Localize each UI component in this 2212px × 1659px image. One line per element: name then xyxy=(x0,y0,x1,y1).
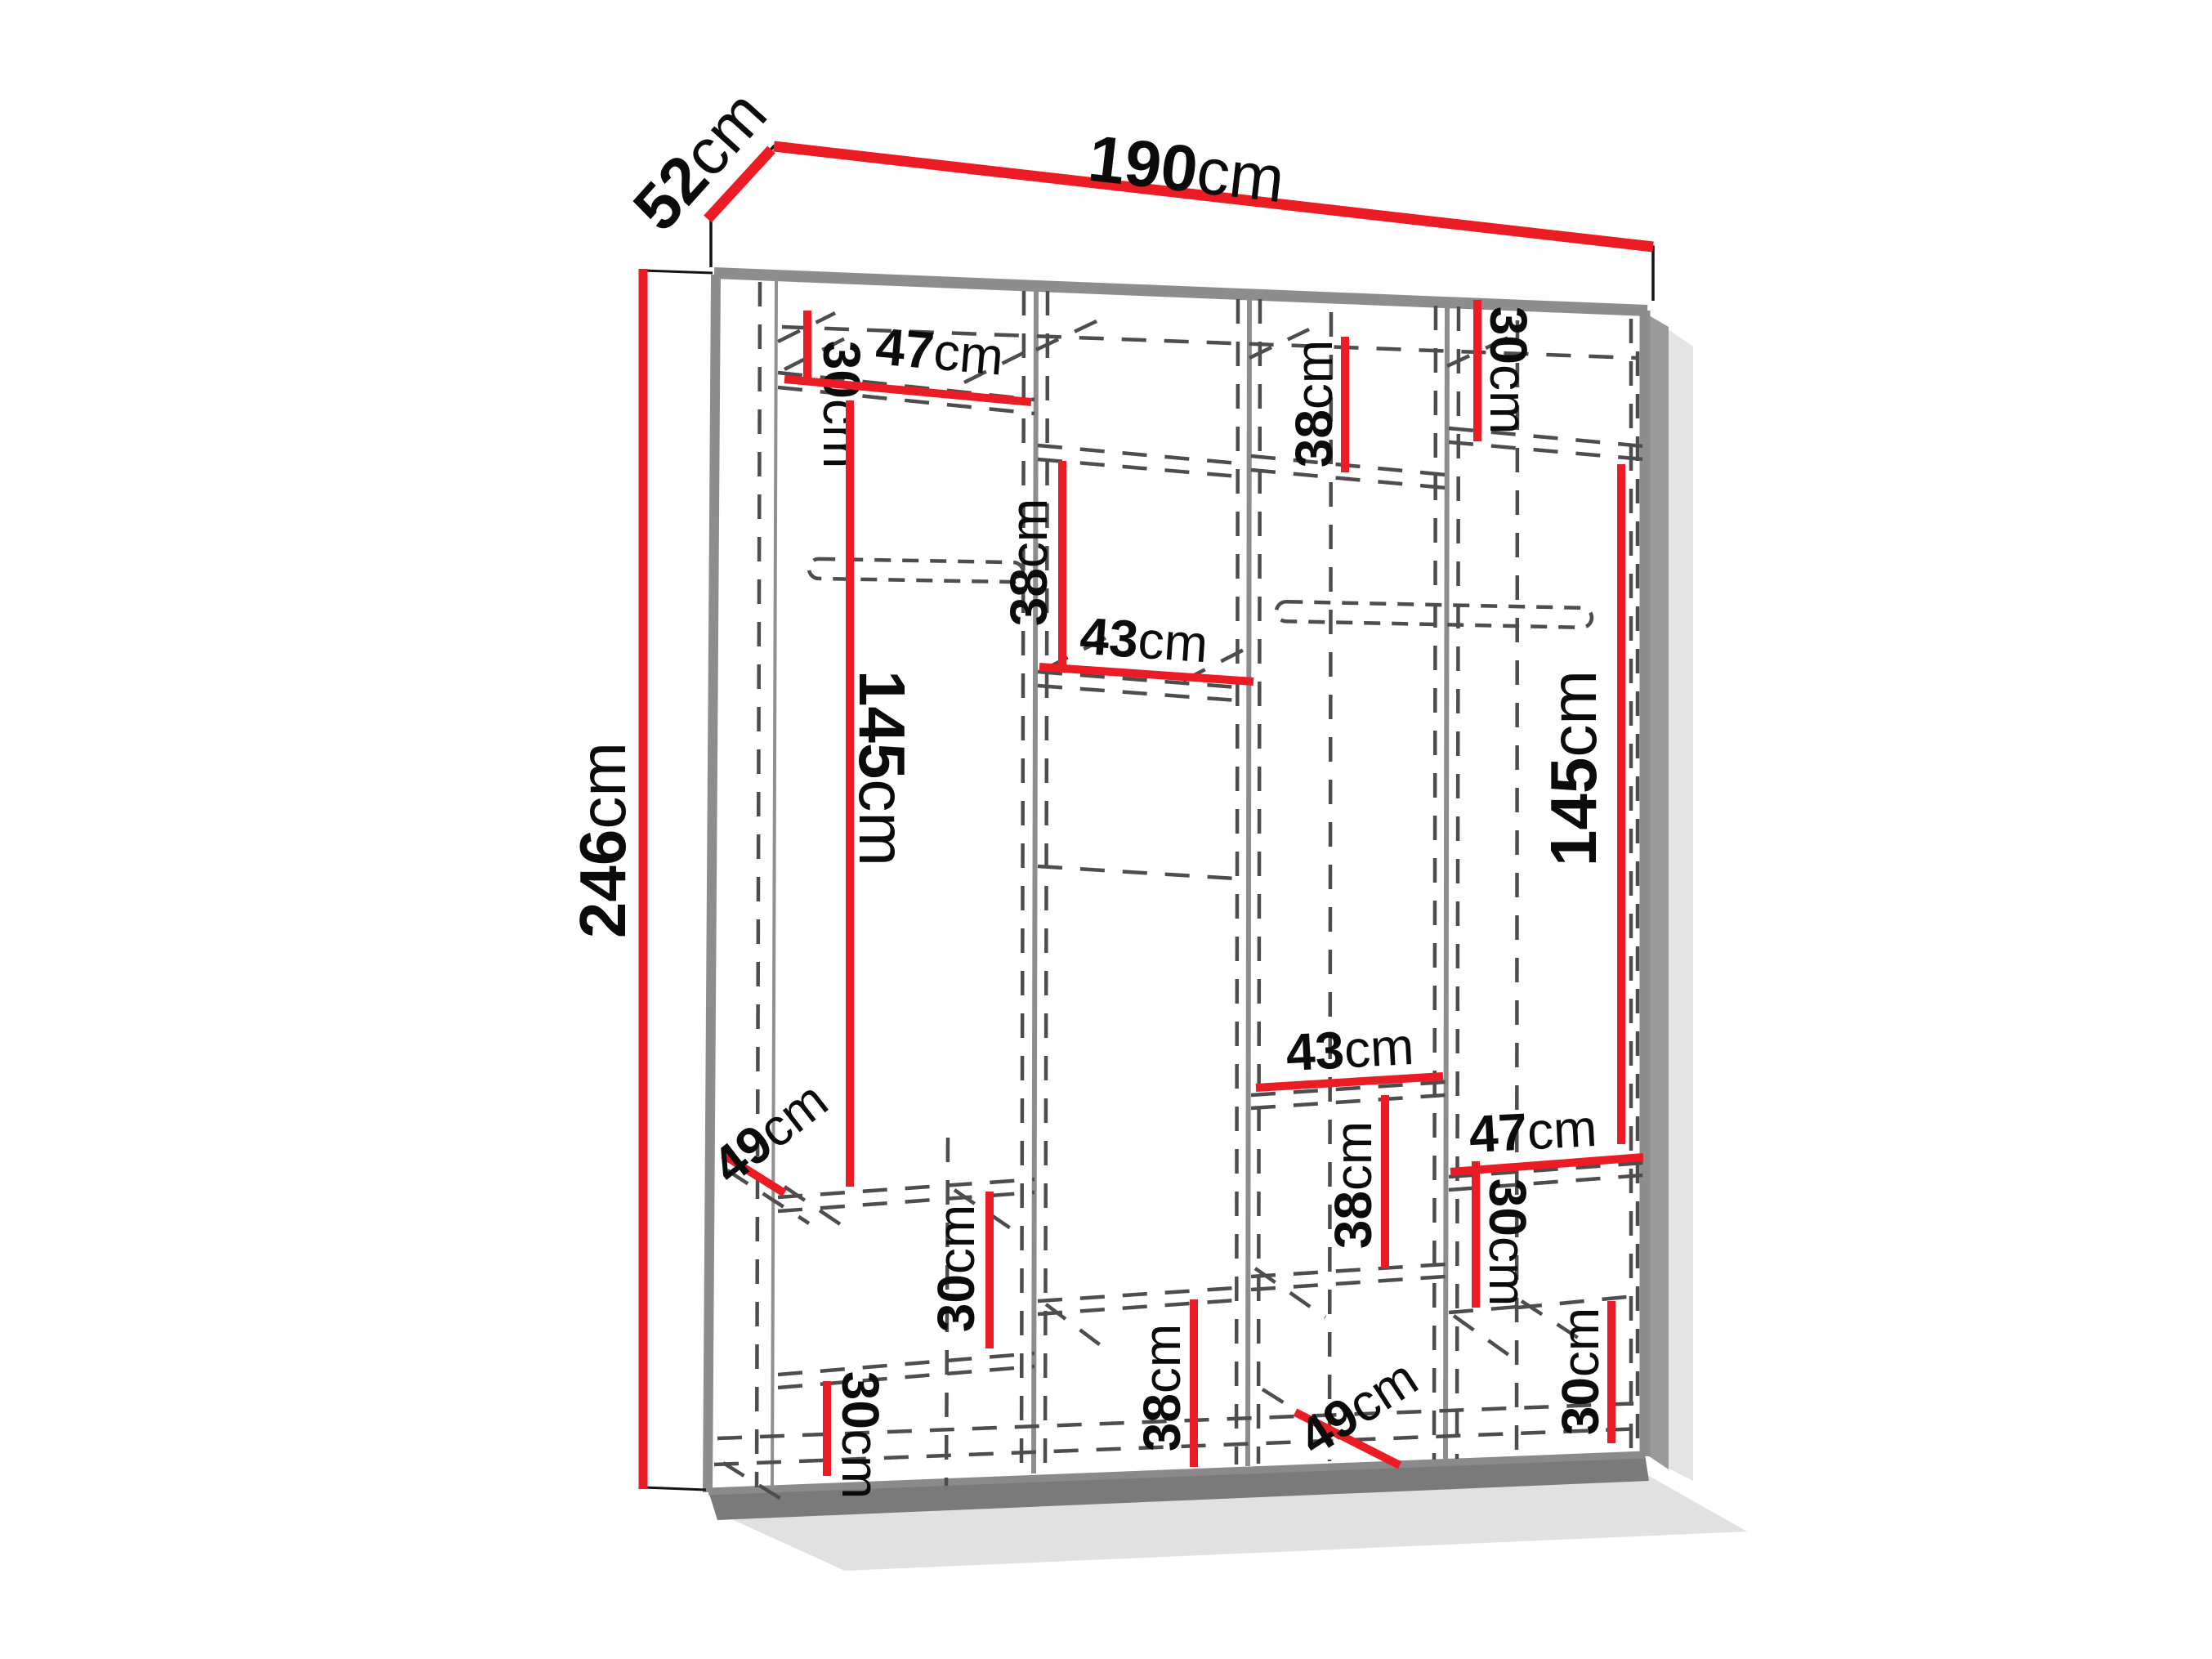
right-soft-shadow xyxy=(1667,329,1693,1481)
dimension-value: 145 xyxy=(1537,758,1610,866)
dimension-label-hang-145-right: 145cm xyxy=(1537,670,1610,866)
dimension-unit: cm xyxy=(1526,1098,1598,1160)
partition-2-front-edge xyxy=(1248,296,1249,1466)
dimension-shelf-30-bottom-left-lower: 30cm xyxy=(827,1371,890,1500)
dimension-unit: cm xyxy=(831,1429,890,1499)
dimension-label-shelf-38-bay2-bottom: 38cm xyxy=(1133,1324,1191,1452)
dimension-unit: cm xyxy=(1136,610,1209,674)
dimension-value: 38 xyxy=(1133,1393,1191,1451)
dimension-label-shelf-47-top-left: 47cm xyxy=(874,316,1006,386)
dimension-shelf-38-bay2-bottom: 38cm xyxy=(1133,1299,1194,1467)
dimension-unit: cm xyxy=(1133,1324,1191,1393)
dimension-tick xyxy=(643,1487,706,1490)
dimension-value: 30 xyxy=(1478,1178,1537,1236)
dimension-value: 190 xyxy=(1085,121,1202,206)
dimension-value: 43 xyxy=(1285,1020,1346,1082)
dimension-value: 38 xyxy=(1285,409,1343,467)
dimension-value: 30 xyxy=(927,1274,985,1332)
dimension-value: 145 xyxy=(847,670,919,779)
dimension-label-shelf-30-bottom-left-upper: 30cm xyxy=(927,1205,985,1333)
dimension-unit: cm xyxy=(1551,1308,1610,1377)
dimension-unit: cm xyxy=(847,779,919,866)
dimension-unit: cm xyxy=(1479,364,1538,434)
dimension-value: 38 xyxy=(999,568,1058,626)
dimension-unit: cm xyxy=(927,1205,985,1274)
dimension-value: 30 xyxy=(1551,1377,1610,1435)
dimension-shelf-38-bay3-top: 38cm xyxy=(1285,337,1345,472)
dimension-unit: cm xyxy=(999,499,1058,568)
dimension-label-width-43-bay2: 43cm xyxy=(1078,606,1209,674)
dimension-unit: cm xyxy=(1324,1121,1383,1191)
dimension-value: 246 xyxy=(566,829,639,938)
dimension-value: 30 xyxy=(1479,306,1538,364)
dimension-unit: cm xyxy=(1285,340,1343,409)
dimension-unit: cm xyxy=(566,742,639,829)
dimension-label-shelf-30-top-left: 30cm xyxy=(812,341,871,469)
dimension-shelf-30-bottom-left-upper: 30cm xyxy=(927,1192,990,1348)
dimension-label-width-43-bay3: 43cm xyxy=(1285,1017,1415,1082)
dimension-value: 43 xyxy=(1078,606,1140,669)
dimension-value: 47 xyxy=(874,316,936,380)
dimension-label-shelf-30-bottom-left-lower: 30cm xyxy=(831,1371,890,1500)
dimension-tick xyxy=(643,271,713,273)
dimension-shelf-30-bottom-right: 30cm xyxy=(1551,1301,1611,1443)
dimension-label-shelf-38-bay2-top: 38cm xyxy=(999,499,1058,627)
dimension-unit: cm xyxy=(1193,133,1288,215)
dimension-label-shelf-30-right-mid: 30cm xyxy=(1478,1178,1537,1307)
dimension-label-shelf-30-bottom-right: 30cm xyxy=(1551,1308,1610,1436)
dimension-label-shelf-38-bay3-lower: 38cm xyxy=(1324,1121,1383,1250)
dimension-unit: cm xyxy=(1537,670,1610,758)
dimension-label-height-246: 246cm xyxy=(566,742,639,938)
dimension-unit: cm xyxy=(812,399,871,468)
dimension-height-246: 246cm xyxy=(566,269,713,1490)
diagram-canvas: 52cm190cm246cm30cm47cm145cm38cm43cm38cm3… xyxy=(0,0,2212,1659)
dimension-value: 30 xyxy=(831,1371,890,1429)
dimension-shelf-38-bay3-lower: 38cm xyxy=(1324,1095,1385,1268)
partition-1-front-edge xyxy=(1034,288,1036,1473)
dimension-label-shelf-30-top-right: 30cm xyxy=(1479,306,1538,435)
dimension-value: 47 xyxy=(1468,1102,1529,1164)
dimension-label-hang-145-left: 145cm xyxy=(847,670,919,866)
dimension-value: 38 xyxy=(1324,1191,1383,1249)
dimension-label-shelf-38-bay3-top: 38cm xyxy=(1285,340,1343,468)
right-shadow-band xyxy=(1649,315,1669,1469)
dimension-label-width-47-right: 47cm xyxy=(1468,1098,1598,1164)
dimension-shelf-30-right-mid: 30cm xyxy=(1476,1161,1537,1308)
dimension-shelf-30-top-right: 30cm xyxy=(1477,300,1538,441)
dimension-unit: cm xyxy=(1478,1236,1537,1306)
wardrobe-dimension-diagram: 52cm190cm246cm30cm47cm145cm38cm43cm38cm3… xyxy=(0,0,2212,1659)
dimension-unit: cm xyxy=(932,322,1006,387)
partition-3-front-edge xyxy=(1446,303,1447,1460)
dimension-unit: cm xyxy=(1343,1017,1415,1079)
